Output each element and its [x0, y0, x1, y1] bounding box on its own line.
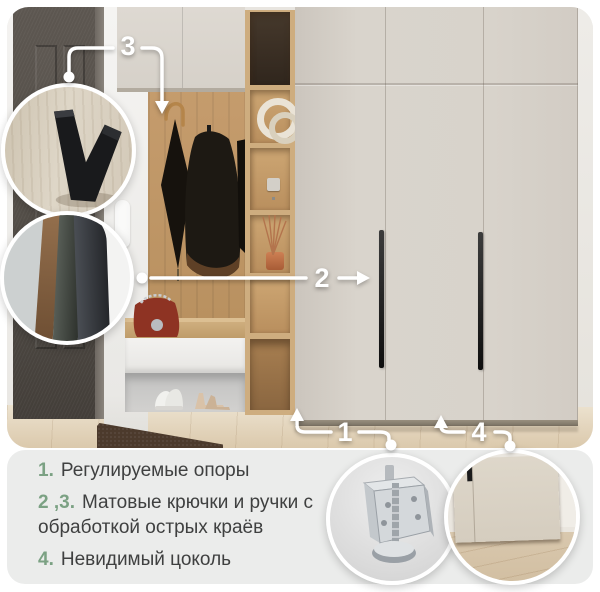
legend-item-text: Регулируемые опоры [61, 460, 250, 481]
cabinet-door-seam [182, 7, 183, 88]
plinth-inset-door-seam [472, 458, 476, 542]
shoes [153, 385, 231, 412]
coats-and-umbrella [137, 85, 249, 297]
plinth-inset-wall [558, 453, 576, 527]
v-hook-icon [5, 87, 132, 214]
coat [185, 131, 240, 278]
legend-item-text: Невидимый цоколь [61, 549, 231, 570]
handbag-medallion [151, 319, 163, 331]
legend-item: 1.Регулируемые опоры [38, 458, 356, 483]
foot-base-top [374, 541, 414, 557]
diffuser-stick-lines [263, 215, 286, 255]
shelf-compartment [250, 12, 290, 85]
shelf-compartment [250, 278, 290, 333]
legend-item: 2 ,3.Матовые крючки и ручки с обработкой… [38, 490, 356, 540]
wardrobe-door-seam [483, 7, 484, 426]
wardrobe-handle [379, 230, 384, 368]
wardrobe-door-seam [385, 7, 386, 426]
matte-handle-profile [73, 211, 109, 345]
adjustable-foot-icon [330, 457, 446, 573]
open-shelf-column [245, 10, 295, 415]
foot-bracket-hole [411, 496, 417, 502]
feature-legend: 1.Регулируемые опоры 2 ,3.Матовые крючки… [38, 458, 356, 579]
heeled-shoe [205, 395, 230, 410]
sneaker-sole [155, 406, 183, 410]
legend-item-text: Матовые крючки и ручки с обработкой остр… [38, 492, 313, 538]
foot-threaded-rod [392, 483, 399, 545]
decor-figurine [267, 178, 280, 191]
product-infographic: 1.Регулируемые опоры 2 ,3.Матовые крючки… [0, 0, 600, 592]
callout-label-2: 2 [309, 263, 335, 294]
wardrobe-top-seam [295, 83, 578, 85]
hook-closeup-inset [1, 83, 136, 218]
door-casing [95, 7, 104, 419]
foot-bracket-hole [381, 520, 387, 526]
wardrobe-handle [478, 232, 483, 370]
handle-closeup-inset [0, 211, 134, 345]
adjustable-foot-inset [326, 453, 458, 585]
plinth-closeup-inset [444, 449, 580, 585]
foot-bracket-front [374, 485, 430, 543]
bench-drawer [125, 338, 245, 373]
handbag-body [134, 298, 179, 337]
plinth-inset-door [453, 455, 561, 543]
legend-item-number: 1. [38, 460, 54, 481]
callout-label-3: 3 [115, 31, 141, 62]
callout-label-1: 1 [332, 417, 358, 448]
legend-item: 4.Невидимый цоколь [38, 547, 356, 572]
legend-item-number: 4. [38, 549, 54, 570]
red-handbag [125, 291, 187, 339]
wardrobe [295, 7, 578, 426]
callout-label-4: 4 [466, 417, 492, 448]
foot-bracket-hole [385, 502, 391, 508]
shelf-compartment [250, 339, 290, 410]
legend-item-number: 2 ,3. [38, 492, 75, 513]
foot-bracket-hole [415, 514, 421, 520]
v-hook-body [54, 110, 122, 202]
diffuser-sticks [257, 215, 289, 255]
right-wall [578, 7, 593, 407]
